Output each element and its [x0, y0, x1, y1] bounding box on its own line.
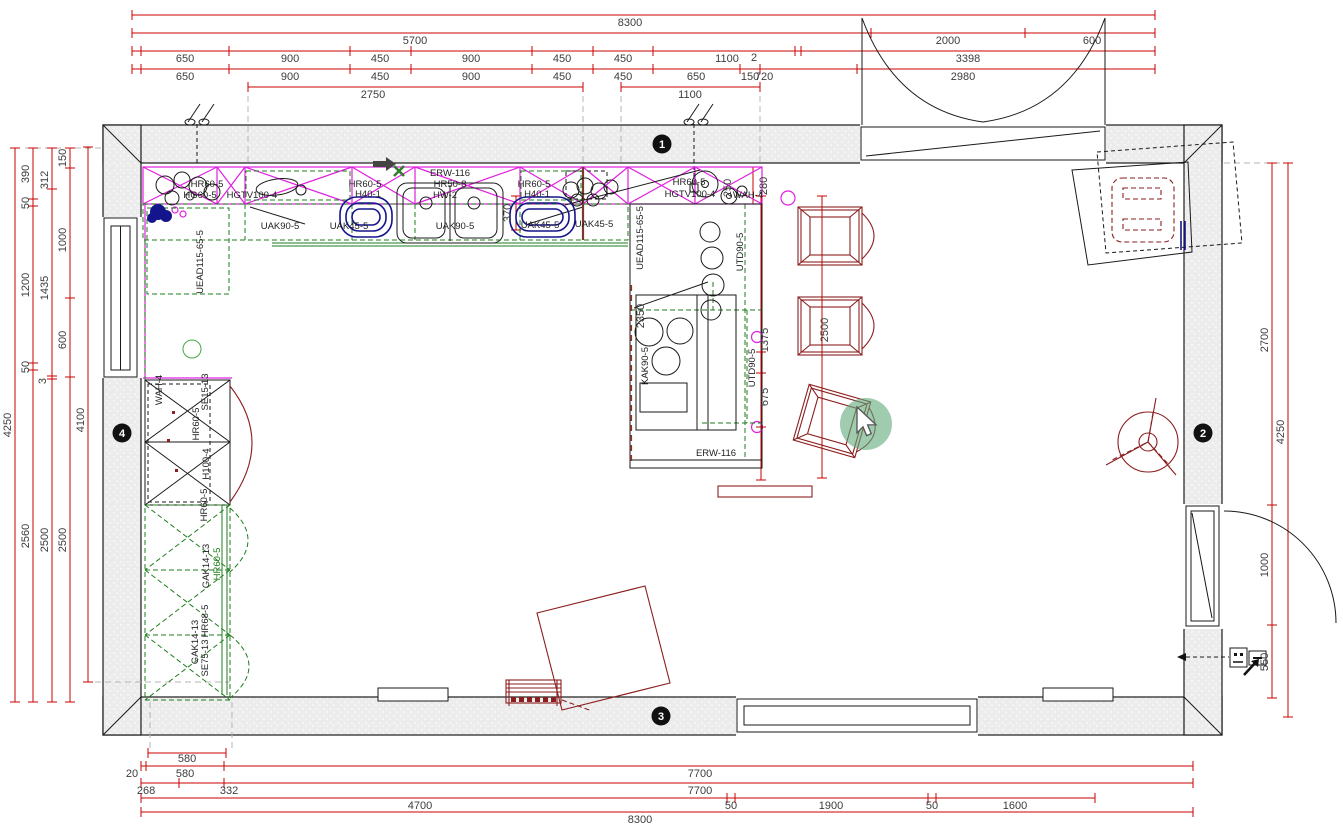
outlet-icon	[781, 191, 795, 205]
dim-label: 312	[39, 171, 51, 189]
dim-label: 2560	[20, 524, 32, 548]
cabinet-label: HG60-5	[183, 190, 216, 201]
wall-niche-left	[378, 688, 448, 701]
dim-label: 2	[751, 52, 757, 64]
dim-label: 50	[20, 361, 32, 373]
chair	[798, 207, 874, 265]
dim-label: 50	[20, 197, 32, 209]
cabinet-label: HGTV100-4	[227, 190, 278, 201]
install-point	[183, 340, 201, 358]
cabinet-label: GAK14-13	[201, 544, 212, 588]
cabinet-label: H40-1	[355, 189, 381, 200]
dim-label: 2700	[1259, 328, 1271, 352]
dim-label: 2000	[936, 35, 960, 47]
cabinet-label: HR50-8	[434, 179, 467, 190]
cabinet-label: HW-2	[433, 190, 457, 201]
cabinet-label: HGTV100-4	[665, 189, 716, 200]
cabinet-label: SE75-13	[200, 640, 211, 677]
dim-label: 4100	[75, 408, 87, 432]
window-bottom[interactable]	[736, 696, 978, 736]
dim-label: 4700	[408, 800, 432, 812]
dim-label: 580	[178, 753, 196, 765]
dim-label: 675	[759, 388, 771, 406]
faucet-icon	[147, 204, 172, 223]
cabinet-label: UAK45-5	[575, 219, 614, 230]
dim-label: 268	[137, 785, 155, 797]
cad-floorplan-canvas[interactable]: 8300570020006006509004509004504501100233…	[0, 0, 1343, 831]
dim-label: 50	[725, 800, 737, 812]
dim-label: 550	[1259, 653, 1271, 671]
dim-label: 2500	[57, 528, 69, 552]
cabinet-label: UAK90-5	[261, 221, 300, 232]
dim-label: 8300	[628, 814, 652, 826]
dim-label: 650	[687, 71, 705, 83]
dim-label: 600	[57, 331, 69, 349]
door-swing-arc	[1224, 511, 1336, 623]
click-feedback	[840, 398, 892, 450]
cabinet-label: HR60-5	[212, 548, 223, 581]
wall-niche-right	[1043, 688, 1113, 701]
dim-label: 450	[553, 53, 571, 65]
wall-shelf	[718, 486, 812, 497]
dim-label: 8300	[618, 17, 642, 29]
dim-label: 4250	[2, 413, 14, 437]
door-swing-arcs	[862, 18, 1105, 122]
dim-label: 1000	[57, 228, 69, 252]
cabinet-door-swing	[230, 386, 252, 502]
cabinet-label: UEAD115-65-5	[195, 230, 206, 294]
dim-label: 150	[57, 149, 69, 167]
dim-label: 450	[614, 71, 632, 83]
cabinet-label: UTD90-5	[735, 233, 746, 272]
dim-label: 900	[462, 53, 480, 65]
dim-label: 1100	[715, 53, 739, 65]
window-left[interactable]	[102, 217, 142, 378]
dim-label: 1200	[20, 273, 32, 297]
dim-label: 20	[126, 768, 138, 780]
dim-label: 2750	[361, 89, 385, 101]
cabinet-door-swing	[230, 508, 249, 698]
dim-label: 370	[502, 204, 514, 222]
cabinet-label: UAK45-5	[330, 221, 369, 232]
cabinet-label: ERW-116	[696, 448, 736, 459]
dim-label: 450	[371, 71, 389, 83]
dim-label: 450	[553, 71, 571, 83]
dim-label: 900	[281, 53, 299, 65]
cabinet-label: ERW-116	[430, 168, 470, 179]
kitchen-base-cabinets[interactable]	[143, 167, 762, 505]
cabinet-label: UTD90-5	[747, 349, 758, 388]
dim-label: 2980	[951, 71, 975, 83]
dim-label: 1000	[1259, 553, 1271, 577]
dim-label: 720	[755, 71, 773, 83]
dim-label: 2350	[635, 304, 647, 328]
dim-label: 2500	[39, 528, 51, 552]
cabinet-label: UAK45-5	[521, 220, 560, 231]
dim-label: 900	[281, 71, 299, 83]
dim-label: 1600	[1003, 800, 1027, 812]
dim-label: 7700	[688, 785, 712, 797]
cabinet-label: UEAD115-65-5	[635, 206, 646, 270]
wall-marker-number: 1	[659, 139, 665, 151]
cabinet-label: KAK90-5	[640, 347, 651, 385]
cabinet-label: H100-4	[201, 448, 212, 479]
wall-marker-number: 2	[1200, 428, 1206, 440]
dim-label: 3	[37, 378, 49, 384]
dim-label: 580	[176, 768, 194, 780]
dim-label: 450	[614, 53, 632, 65]
dim-label: 600	[1083, 35, 1101, 47]
cabinet-label: WAH-4	[733, 190, 763, 201]
dim-label: 650	[176, 71, 194, 83]
cabinet-label: HR68-5	[200, 605, 211, 638]
dim-label: 1900	[819, 800, 843, 812]
dim-label: 390	[20, 165, 32, 183]
double-door-top[interactable]	[860, 18, 1106, 164]
dim-label: 2500	[819, 318, 831, 342]
cabinet-label: SE15-13	[200, 374, 211, 411]
dim-label: 900	[462, 71, 480, 83]
dim-label: 4250	[1275, 420, 1287, 444]
cabinet-label: HR60-5	[191, 408, 202, 441]
dim-label: 3398	[956, 53, 980, 65]
dim-label: 1100	[678, 89, 702, 101]
cabinet-label: HR60-5	[673, 177, 706, 188]
dim-label: 450	[371, 53, 389, 65]
dim-label: 650	[176, 53, 194, 65]
chair	[798, 297, 874, 355]
wall-marker-number: 4	[119, 428, 126, 440]
dim-label: 5700	[403, 35, 427, 47]
cabinet-label: WAH-4	[154, 375, 165, 405]
dim-label: 332	[220, 785, 238, 797]
cabinet-label: UAK90-5	[436, 221, 475, 232]
dim-label: 50	[926, 800, 938, 812]
wall-marker-number: 3	[658, 711, 664, 723]
round-tripod-table	[1106, 398, 1178, 475]
dim-label: 1375	[759, 328, 771, 352]
cabinet-label: HR60-5	[199, 489, 210, 522]
dim-label: 1435	[39, 276, 51, 300]
dim-label: 7700	[688, 768, 712, 780]
cabinet-label: HR60-5	[191, 179, 224, 190]
cabinet-label: H40-1	[524, 189, 550, 200]
